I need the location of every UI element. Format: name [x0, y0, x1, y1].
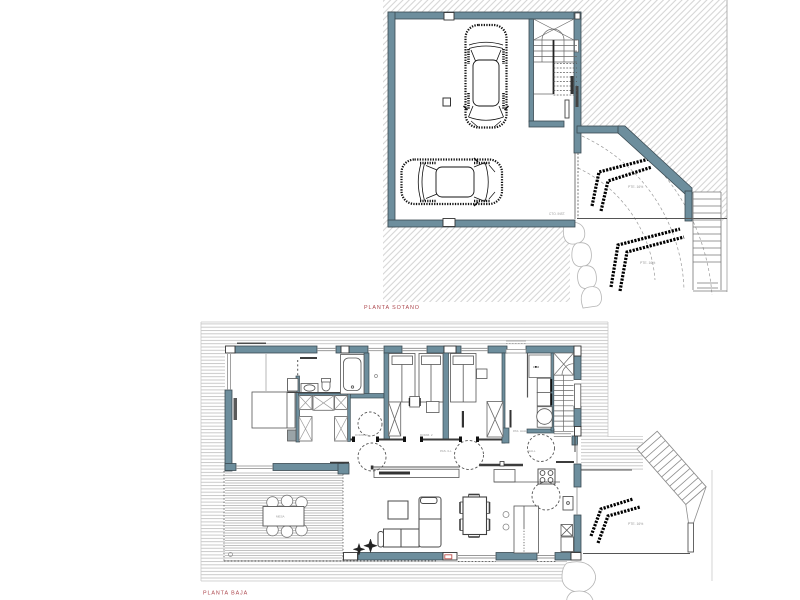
- svg-text:HALL: HALL: [528, 449, 536, 453]
- svg-text:CTO. INST.: CTO. INST.: [549, 212, 565, 216]
- svg-text:DORM. 3: DORM. 3: [355, 433, 368, 437]
- svg-text:DORM. 2: DORM. 2: [420, 433, 433, 437]
- svg-text:MESA: MESA: [276, 515, 285, 519]
- svg-text:PLANTA BAJA: PLANTA BAJA: [203, 591, 248, 597]
- svg-text:PAS. ILL: PAS. ILL: [440, 449, 452, 453]
- svg-text:PTE. 16%: PTE. 16%: [628, 522, 643, 526]
- svg-text:PTE. 16%: PTE. 16%: [640, 261, 655, 265]
- svg-text:PLANTA SOTANO: PLANTA SOTANO: [364, 305, 420, 311]
- svg-text:PTE. 16%: PTE. 16%: [628, 185, 643, 189]
- svg-text:c■a: c■a: [533, 365, 539, 369]
- svg-text:PAS. HALL: PAS. HALL: [513, 429, 527, 433]
